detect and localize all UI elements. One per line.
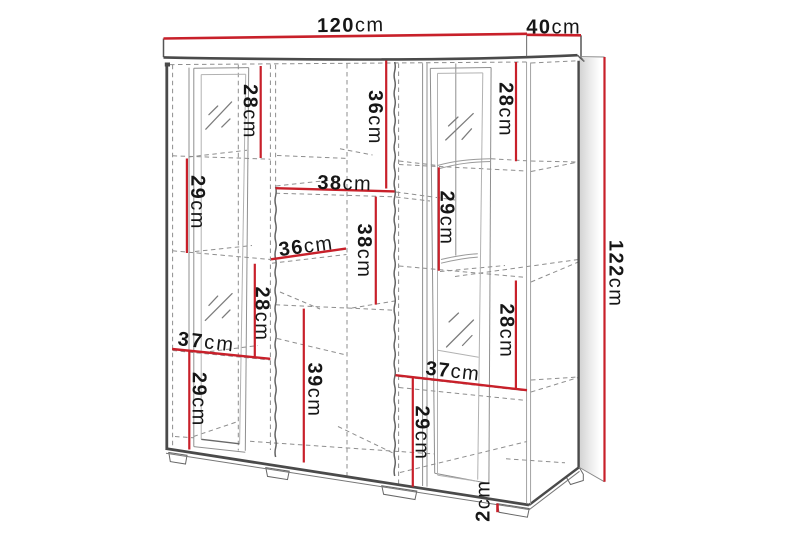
svg-text:120cm: 120cm <box>317 14 385 37</box>
svg-text:29cm: 29cm <box>186 175 208 230</box>
svg-text:2cm: 2cm <box>472 480 494 522</box>
svg-text:29cm: 29cm <box>436 191 458 246</box>
svg-text:39cm: 39cm <box>303 363 325 418</box>
svg-text:29cm: 29cm <box>188 372 210 427</box>
svg-text:28cm: 28cm <box>239 84 261 139</box>
svg-text:38cm: 38cm <box>317 172 372 195</box>
svg-text:29cm: 29cm <box>411 406 433 461</box>
svg-text:28cm: 28cm <box>495 303 517 358</box>
svg-text:36cm: 36cm <box>364 90 386 145</box>
svg-text:28cm: 28cm <box>251 287 273 342</box>
svg-text:38cm: 38cm <box>353 224 375 279</box>
svg-text:28cm: 28cm <box>494 82 516 137</box>
svg-text:40cm: 40cm <box>526 16 581 38</box>
svg-text:122cm: 122cm <box>604 240 626 308</box>
